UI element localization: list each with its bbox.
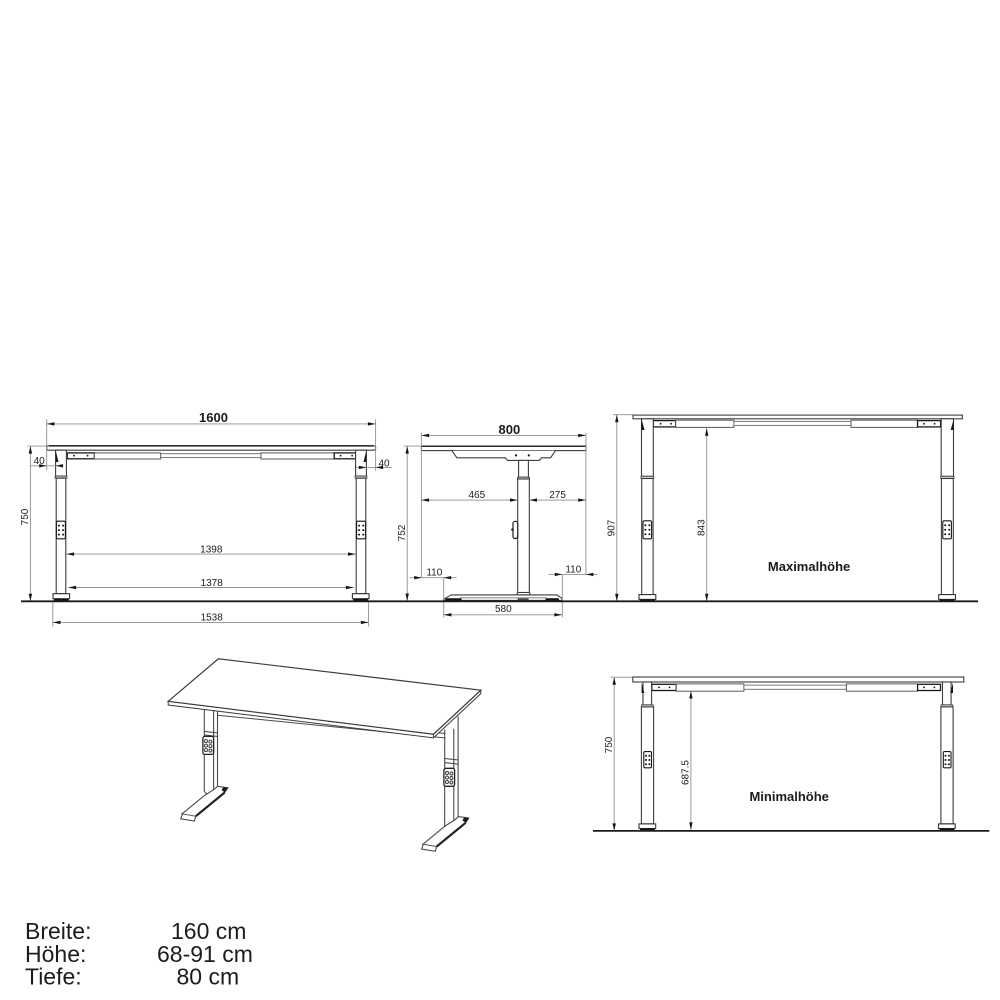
svg-text:40: 40 <box>34 456 46 467</box>
svg-text:Tiefe:: Tiefe: <box>25 964 82 990</box>
svg-text:907: 907 <box>607 519 618 536</box>
svg-text:110: 110 <box>426 567 442 578</box>
svg-text:687.5: 687.5 <box>681 760 692 785</box>
svg-text:1538: 1538 <box>201 613 224 624</box>
svg-text:110: 110 <box>565 565 581 576</box>
svg-text:843: 843 <box>697 519 708 536</box>
svg-text:1600: 1600 <box>199 410 228 425</box>
svg-text:Minimalhöhe: Minimalhöhe <box>749 789 828 804</box>
svg-text:40: 40 <box>378 459 390 470</box>
svg-text:Breite:: Breite: <box>25 918 91 944</box>
svg-text:1378: 1378 <box>201 578 224 589</box>
svg-text:750: 750 <box>20 508 31 525</box>
svg-text:800: 800 <box>499 422 521 437</box>
svg-text:752: 752 <box>397 524 408 541</box>
svg-text:465: 465 <box>468 490 485 501</box>
svg-text:275: 275 <box>549 490 566 501</box>
svg-text:160 cm: 160 cm <box>171 918 246 944</box>
svg-text:Maximalhöhe: Maximalhöhe <box>768 559 850 574</box>
svg-text:80 cm: 80 cm <box>177 964 240 990</box>
svg-text:580: 580 <box>495 604 512 615</box>
svg-text:1398: 1398 <box>200 544 223 555</box>
svg-text:750: 750 <box>604 736 615 753</box>
